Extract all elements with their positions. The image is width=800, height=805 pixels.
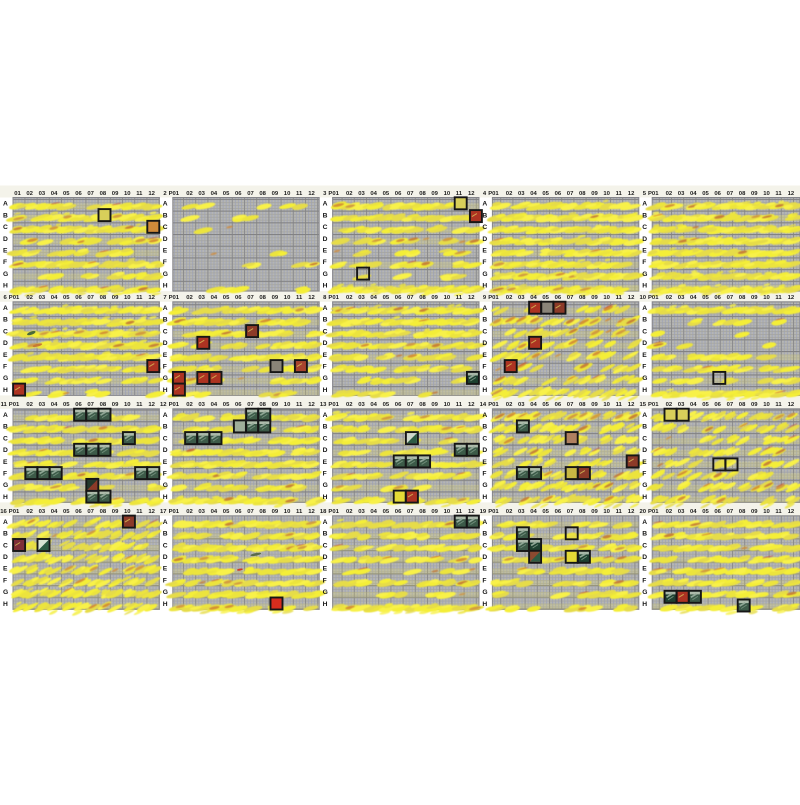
svg-text:H: H xyxy=(163,494,168,501)
svg-text:07: 07 xyxy=(407,402,414,408)
svg-text:05: 05 xyxy=(702,402,709,408)
svg-text:06: 06 xyxy=(395,191,402,197)
svg-text:D: D xyxy=(3,447,8,454)
svg-text:B: B xyxy=(482,317,487,324)
svg-text:P01: P01 xyxy=(169,295,180,301)
svg-text:07: 07 xyxy=(407,295,414,301)
svg-text:C: C xyxy=(482,435,487,442)
svg-text:B: B xyxy=(163,212,168,219)
svg-text:12: 12 xyxy=(468,191,475,197)
svg-text:06: 06 xyxy=(235,509,242,515)
svg-text:A: A xyxy=(482,305,487,312)
svg-text:07: 07 xyxy=(567,509,574,515)
svg-text:H: H xyxy=(482,494,487,501)
svg-text:H: H xyxy=(163,387,168,394)
svg-text:C: C xyxy=(642,224,647,231)
svg-text:06: 06 xyxy=(555,509,562,515)
svg-text:15: 15 xyxy=(639,402,646,408)
svg-text:10: 10 xyxy=(444,509,451,515)
svg-text:D: D xyxy=(163,236,168,243)
svg-text:07: 07 xyxy=(87,191,94,197)
svg-text:03: 03 xyxy=(198,509,205,515)
svg-text:02: 02 xyxy=(186,191,193,197)
svg-text:F: F xyxy=(3,470,7,477)
svg-text:08: 08 xyxy=(259,402,266,408)
svg-text:F: F xyxy=(3,259,7,266)
svg-text:H: H xyxy=(323,283,328,290)
svg-text:06: 06 xyxy=(714,191,721,197)
svg-text:18: 18 xyxy=(320,509,327,515)
svg-text:F: F xyxy=(323,470,327,477)
svg-text:11: 11 xyxy=(1,402,8,408)
svg-text:10: 10 xyxy=(603,191,610,197)
svg-text:D: D xyxy=(323,554,328,561)
svg-text:G: G xyxy=(3,482,8,489)
svg-text:10: 10 xyxy=(603,509,610,515)
svg-text:C: C xyxy=(163,224,168,231)
svg-text:11: 11 xyxy=(775,402,782,408)
svg-text:02: 02 xyxy=(346,402,353,408)
svg-text:G: G xyxy=(482,589,487,596)
svg-text:E: E xyxy=(642,248,647,255)
svg-text:07: 07 xyxy=(567,295,574,301)
svg-text:02: 02 xyxy=(666,191,673,197)
svg-text:07: 07 xyxy=(407,191,414,197)
svg-text:B: B xyxy=(642,212,647,219)
svg-text:G: G xyxy=(482,482,487,489)
svg-text:02: 02 xyxy=(506,509,513,515)
svg-text:02: 02 xyxy=(26,295,33,301)
svg-text:11: 11 xyxy=(456,402,463,408)
svg-text:A: A xyxy=(323,519,328,526)
svg-text:05: 05 xyxy=(63,509,70,515)
svg-text:G: G xyxy=(642,271,647,278)
svg-text:P01: P01 xyxy=(648,402,659,408)
svg-text:D: D xyxy=(482,236,487,243)
svg-text:A: A xyxy=(642,201,647,208)
svg-text:E: E xyxy=(323,248,328,255)
svg-text:G: G xyxy=(323,589,328,596)
svg-text:05: 05 xyxy=(223,402,230,408)
svg-text:08: 08 xyxy=(259,509,266,515)
svg-text:09: 09 xyxy=(112,509,119,515)
svg-text:12: 12 xyxy=(788,402,795,408)
svg-text:B: B xyxy=(163,424,168,431)
svg-text:12: 12 xyxy=(628,191,635,197)
svg-text:09: 09 xyxy=(751,295,758,301)
svg-text:03: 03 xyxy=(678,402,685,408)
svg-text:D: D xyxy=(482,340,487,347)
svg-text:02: 02 xyxy=(26,191,33,197)
svg-text:11: 11 xyxy=(616,191,623,197)
svg-text:F: F xyxy=(642,470,646,477)
svg-text:05: 05 xyxy=(702,509,709,515)
svg-text:B: B xyxy=(482,212,487,219)
svg-text:08: 08 xyxy=(419,191,426,197)
svg-text:05: 05 xyxy=(223,295,230,301)
svg-text:17: 17 xyxy=(160,509,167,515)
svg-text:D: D xyxy=(323,236,328,243)
svg-text:A: A xyxy=(163,519,168,526)
svg-text:C: C xyxy=(3,328,8,335)
svg-text:03: 03 xyxy=(39,191,46,197)
svg-text:04: 04 xyxy=(530,402,537,408)
svg-text:12: 12 xyxy=(308,509,315,515)
svg-text:E: E xyxy=(482,459,487,466)
svg-text:A: A xyxy=(3,519,8,526)
svg-text:02: 02 xyxy=(666,402,673,408)
svg-text:A: A xyxy=(323,412,328,419)
svg-text:10: 10 xyxy=(284,509,291,515)
svg-text:09: 09 xyxy=(591,402,598,408)
svg-text:11: 11 xyxy=(296,509,303,515)
svg-text:03: 03 xyxy=(678,509,685,515)
svg-text:07: 07 xyxy=(727,509,734,515)
svg-text:02: 02 xyxy=(506,402,513,408)
svg-text:E: E xyxy=(323,459,328,466)
svg-text:09: 09 xyxy=(751,509,758,515)
svg-text:06: 06 xyxy=(75,509,82,515)
svg-text:F: F xyxy=(323,259,327,266)
svg-text:05: 05 xyxy=(702,295,709,301)
svg-text:E: E xyxy=(642,352,647,359)
svg-text:12: 12 xyxy=(148,191,155,197)
svg-text:02: 02 xyxy=(186,509,193,515)
svg-text:11: 11 xyxy=(136,402,143,408)
svg-text:H: H xyxy=(323,494,328,501)
svg-text:10: 10 xyxy=(284,295,291,301)
svg-text:09: 09 xyxy=(751,402,758,408)
svg-text:10: 10 xyxy=(603,295,610,301)
svg-text:A: A xyxy=(482,412,487,419)
svg-text:12: 12 xyxy=(468,509,475,515)
svg-text:C: C xyxy=(482,542,487,549)
svg-text:D: D xyxy=(3,340,8,347)
svg-text:F: F xyxy=(482,259,486,266)
svg-text:11: 11 xyxy=(775,191,782,197)
svg-text:06: 06 xyxy=(714,509,721,515)
svg-text:C: C xyxy=(482,224,487,231)
svg-text:H: H xyxy=(642,283,647,290)
svg-text:08: 08 xyxy=(739,191,746,197)
svg-text:08: 08 xyxy=(739,509,746,515)
svg-text:06: 06 xyxy=(395,295,402,301)
svg-text:08: 08 xyxy=(100,402,107,408)
svg-text:04: 04 xyxy=(530,295,537,301)
svg-text:07: 07 xyxy=(247,191,254,197)
svg-text:F: F xyxy=(3,363,7,370)
svg-text:F: F xyxy=(163,363,167,370)
svg-text:F: F xyxy=(642,577,646,584)
svg-text:A: A xyxy=(3,201,8,208)
svg-text:E: E xyxy=(163,566,168,573)
svg-text:04: 04 xyxy=(370,402,377,408)
svg-text:B: B xyxy=(3,212,8,219)
svg-text:04: 04 xyxy=(211,191,218,197)
svg-text:C: C xyxy=(642,328,647,335)
svg-text:08: 08 xyxy=(419,509,426,515)
svg-text:05: 05 xyxy=(383,402,390,408)
svg-text:16: 16 xyxy=(0,509,7,515)
svg-text:B: B xyxy=(323,317,328,324)
svg-text:04: 04 xyxy=(51,191,58,197)
svg-text:B: B xyxy=(3,317,8,324)
svg-text:10: 10 xyxy=(124,402,131,408)
svg-text:P01: P01 xyxy=(169,509,180,515)
svg-text:F: F xyxy=(3,577,7,584)
svg-text:03: 03 xyxy=(39,509,46,515)
svg-text:A: A xyxy=(482,201,487,208)
svg-text:A: A xyxy=(163,305,168,312)
svg-text:04: 04 xyxy=(690,295,697,301)
svg-text:H: H xyxy=(642,387,647,394)
svg-text:08: 08 xyxy=(259,191,266,197)
svg-text:08: 08 xyxy=(579,191,586,197)
svg-text:04: 04 xyxy=(690,191,697,197)
svg-text:E: E xyxy=(323,566,328,573)
svg-text:01: 01 xyxy=(14,191,21,197)
svg-text:P01: P01 xyxy=(328,402,339,408)
svg-text:11: 11 xyxy=(456,295,463,301)
svg-text:09: 09 xyxy=(591,191,598,197)
svg-text:07: 07 xyxy=(87,402,94,408)
svg-text:03: 03 xyxy=(358,295,365,301)
svg-text:02: 02 xyxy=(26,509,33,515)
svg-text:07: 07 xyxy=(87,509,94,515)
svg-text:E: E xyxy=(482,248,487,255)
svg-text:03: 03 xyxy=(678,295,685,301)
svg-text:04: 04 xyxy=(370,295,377,301)
svg-text:P01: P01 xyxy=(169,402,180,408)
svg-text:G: G xyxy=(3,589,8,596)
svg-text:03: 03 xyxy=(39,402,46,408)
svg-text:09: 09 xyxy=(272,191,279,197)
svg-text:02: 02 xyxy=(346,295,353,301)
svg-text:06: 06 xyxy=(235,295,242,301)
svg-text:03: 03 xyxy=(198,191,205,197)
svg-text:G: G xyxy=(323,482,328,489)
svg-text:20: 20 xyxy=(639,509,646,515)
svg-text:B: B xyxy=(323,531,328,538)
svg-text:E: E xyxy=(3,459,8,466)
svg-text:12: 12 xyxy=(308,191,315,197)
svg-text:09: 09 xyxy=(431,191,438,197)
svg-text:G: G xyxy=(163,271,168,278)
svg-text:05: 05 xyxy=(542,295,549,301)
svg-text:10: 10 xyxy=(124,191,131,197)
svg-text:P01: P01 xyxy=(488,295,499,301)
svg-text:12: 12 xyxy=(148,402,155,408)
svg-text:04: 04 xyxy=(530,191,537,197)
svg-text:02: 02 xyxy=(346,509,353,515)
svg-text:H: H xyxy=(482,387,487,394)
svg-text:05: 05 xyxy=(542,402,549,408)
svg-text:05: 05 xyxy=(542,509,549,515)
svg-text:07: 07 xyxy=(567,402,574,408)
svg-text:05: 05 xyxy=(383,509,390,515)
svg-text:08: 08 xyxy=(579,295,586,301)
svg-text:04: 04 xyxy=(51,509,58,515)
svg-text:06: 06 xyxy=(75,295,82,301)
svg-text:05: 05 xyxy=(383,295,390,301)
svg-text:B: B xyxy=(642,424,647,431)
svg-text:F: F xyxy=(642,363,646,370)
svg-text:10: 10 xyxy=(763,295,770,301)
svg-text:08: 08 xyxy=(100,191,107,197)
svg-text:E: E xyxy=(3,566,8,573)
svg-text:07: 07 xyxy=(247,402,254,408)
svg-text:E: E xyxy=(3,248,8,255)
svg-text:C: C xyxy=(163,435,168,442)
svg-text:H: H xyxy=(163,283,168,290)
svg-text:08: 08 xyxy=(579,402,586,408)
svg-text:03: 03 xyxy=(518,295,525,301)
svg-text:04: 04 xyxy=(51,295,58,301)
svg-text:04: 04 xyxy=(690,402,697,408)
svg-text:04: 04 xyxy=(370,509,377,515)
svg-text:C: C xyxy=(163,542,168,549)
svg-text:C: C xyxy=(323,542,328,549)
svg-text:B: B xyxy=(482,531,487,538)
svg-text:A: A xyxy=(482,519,487,526)
svg-text:02: 02 xyxy=(186,295,193,301)
svg-text:05: 05 xyxy=(63,295,70,301)
svg-text:F: F xyxy=(482,363,486,370)
svg-text:C: C xyxy=(323,328,328,335)
svg-text:B: B xyxy=(163,317,168,324)
svg-text:12: 12 xyxy=(148,509,155,515)
svg-text:09: 09 xyxy=(112,402,119,408)
svg-text:03: 03 xyxy=(358,402,365,408)
svg-text:06: 06 xyxy=(555,295,562,301)
svg-text:D: D xyxy=(482,447,487,454)
svg-text:P01: P01 xyxy=(648,295,659,301)
svg-text:07: 07 xyxy=(247,509,254,515)
svg-text:H: H xyxy=(3,283,8,290)
svg-text:05: 05 xyxy=(542,191,549,197)
svg-text:P01: P01 xyxy=(169,191,180,197)
svg-text:C: C xyxy=(3,542,8,549)
svg-text:A: A xyxy=(642,519,647,526)
svg-text:C: C xyxy=(323,435,328,442)
svg-text:05: 05 xyxy=(223,191,230,197)
svg-text:P01: P01 xyxy=(648,191,659,197)
svg-text:11: 11 xyxy=(296,402,303,408)
svg-text:12: 12 xyxy=(788,295,795,301)
svg-text:03: 03 xyxy=(198,402,205,408)
svg-text:P01: P01 xyxy=(9,509,20,515)
svg-text:P01: P01 xyxy=(9,402,20,408)
svg-text:02: 02 xyxy=(666,509,673,515)
svg-text:02: 02 xyxy=(346,191,353,197)
svg-text:P01: P01 xyxy=(328,191,339,197)
svg-text:G: G xyxy=(642,482,647,489)
svg-text:04: 04 xyxy=(370,191,377,197)
svg-text:A: A xyxy=(642,412,647,419)
svg-text:A: A xyxy=(642,305,647,312)
svg-text:05: 05 xyxy=(702,191,709,197)
svg-text:04: 04 xyxy=(211,295,218,301)
svg-text:08: 08 xyxy=(100,295,107,301)
svg-text:A: A xyxy=(3,412,8,419)
svg-text:07: 07 xyxy=(727,402,734,408)
svg-text:H: H xyxy=(3,387,8,394)
svg-text:F: F xyxy=(163,259,167,266)
svg-text:G: G xyxy=(323,375,328,382)
svg-text:07: 07 xyxy=(567,191,574,197)
svg-text:E: E xyxy=(3,352,8,359)
svg-text:C: C xyxy=(642,542,647,549)
svg-text:A: A xyxy=(3,305,8,312)
svg-text:11: 11 xyxy=(456,509,463,515)
svg-text:06: 06 xyxy=(555,191,562,197)
svg-text:10: 10 xyxy=(639,295,646,301)
svg-text:12: 12 xyxy=(788,191,795,197)
svg-text:E: E xyxy=(163,248,168,255)
svg-text:07: 07 xyxy=(727,191,734,197)
svg-text:E: E xyxy=(323,352,328,359)
svg-text:12: 12 xyxy=(628,509,635,515)
svg-text:G: G xyxy=(163,482,168,489)
svg-text:08: 08 xyxy=(259,295,266,301)
svg-text:05: 05 xyxy=(223,509,230,515)
svg-text:02: 02 xyxy=(506,295,513,301)
svg-text:11: 11 xyxy=(775,295,782,301)
svg-text:E: E xyxy=(642,459,647,466)
svg-text:D: D xyxy=(482,554,487,561)
svg-text:A: A xyxy=(323,201,328,208)
svg-text:12: 12 xyxy=(160,402,167,408)
svg-text:08: 08 xyxy=(100,509,107,515)
svg-text:D: D xyxy=(323,340,328,347)
svg-text:P01: P01 xyxy=(9,295,20,301)
svg-text:09: 09 xyxy=(431,295,438,301)
svg-text:G: G xyxy=(642,589,647,596)
svg-text:G: G xyxy=(3,271,8,278)
svg-text:P01: P01 xyxy=(488,509,499,515)
svg-text:09: 09 xyxy=(112,191,119,197)
svg-text:08: 08 xyxy=(579,509,586,515)
svg-text:F: F xyxy=(482,577,486,584)
svg-text:06: 06 xyxy=(395,509,402,515)
svg-text:F: F xyxy=(642,259,646,266)
svg-text:12: 12 xyxy=(788,509,795,515)
svg-text:08: 08 xyxy=(739,295,746,301)
svg-text:11: 11 xyxy=(136,509,143,515)
svg-text:10: 10 xyxy=(444,295,451,301)
svg-text:11: 11 xyxy=(616,402,623,408)
svg-text:E: E xyxy=(642,566,647,573)
svg-text:F: F xyxy=(482,470,486,477)
svg-text:11: 11 xyxy=(136,295,143,301)
svg-text:03: 03 xyxy=(678,191,685,197)
svg-text:07: 07 xyxy=(247,295,254,301)
svg-text:F: F xyxy=(163,470,167,477)
svg-text:C: C xyxy=(3,224,8,231)
svg-text:03: 03 xyxy=(518,191,525,197)
svg-text:10: 10 xyxy=(284,402,291,408)
svg-text:02: 02 xyxy=(26,402,33,408)
svg-text:09: 09 xyxy=(751,191,758,197)
svg-text:P01: P01 xyxy=(488,402,499,408)
svg-text:02: 02 xyxy=(506,191,513,197)
svg-text:04: 04 xyxy=(51,402,58,408)
svg-text:G: G xyxy=(482,271,487,278)
svg-text:B: B xyxy=(642,317,647,324)
svg-text:06: 06 xyxy=(714,402,721,408)
svg-text:06: 06 xyxy=(555,402,562,408)
svg-text:G: G xyxy=(163,375,168,382)
